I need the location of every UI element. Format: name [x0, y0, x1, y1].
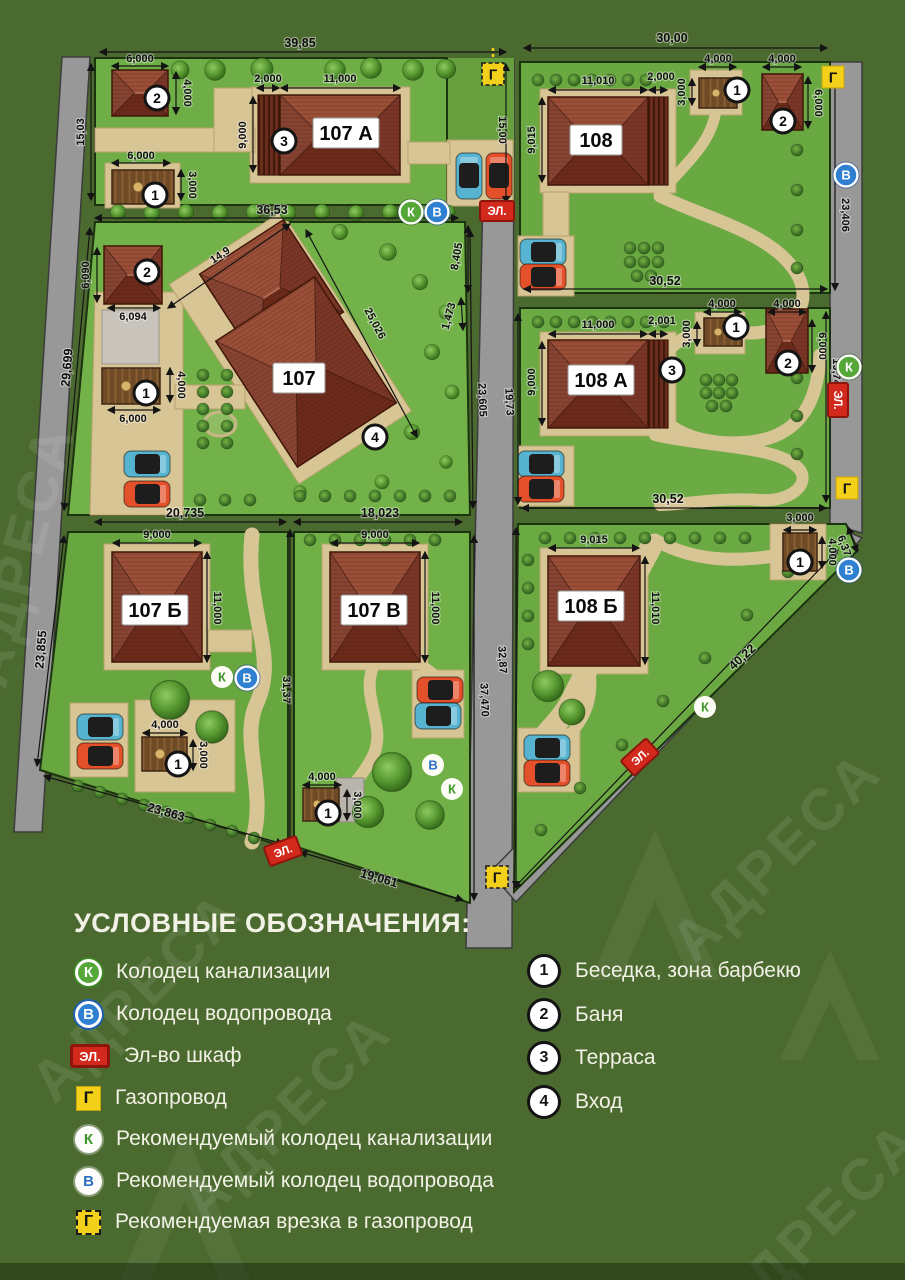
dim: 9,000	[526, 368, 538, 396]
recommended-gas-tap-icon: Г	[76, 1210, 101, 1235]
plot-label-107a: 107 А	[313, 118, 379, 148]
recommended-gas-tap-icon: Г	[482, 63, 504, 85]
svg-text:2: 2	[143, 264, 151, 280]
water-well-icon: В	[234, 665, 260, 691]
water-well-icon: В	[833, 162, 859, 188]
svg-text:1: 1	[733, 82, 741, 98]
dim: 9,000	[361, 529, 389, 541]
legend-item-sewer-well: ККолодец канализации	[75, 955, 330, 989]
legend-item-gas: ГГазопровод	[76, 1081, 227, 1115]
dim: 11,000	[429, 591, 441, 624]
dim-108a-bottom: 30,52	[652, 492, 683, 506]
dim: 4,000	[175, 371, 187, 399]
gas-icon: Г	[822, 66, 844, 88]
dim-108b-left: 32,87	[495, 646, 508, 674]
dim: 11,000	[211, 591, 223, 624]
dim-107v-right: 37,470	[477, 683, 490, 717]
marker-entrance: 4	[363, 425, 387, 449]
legend-item-entrance: 4Вход	[527, 1085, 623, 1119]
dim: 6,000	[816, 332, 828, 360]
sewer-well-icon: К	[75, 959, 102, 986]
dim-108a-left: 19,73	[502, 388, 515, 416]
svg-text:2: 2	[784, 355, 792, 371]
dim: 6,000	[127, 150, 155, 162]
svg-text:108 А: 108 А	[574, 370, 627, 392]
dim-boundary-107b-107v: 31,37	[280, 676, 292, 704]
svg-text:К: К	[218, 670, 226, 685]
dim: 3,000	[197, 741, 209, 769]
svg-text:В: В	[841, 168, 850, 183]
svg-text:1: 1	[796, 554, 804, 570]
electric-cabinet-icon: ЭЛ.	[480, 201, 514, 221]
dim: 2,000	[254, 73, 282, 85]
marker-gazebo: 1	[316, 801, 340, 825]
dim: 4,000	[708, 298, 736, 310]
sewer-well-icon: К	[836, 354, 862, 380]
gas-icon: Г	[76, 1086, 101, 1111]
dim: 11,010	[649, 591, 661, 624]
dim: 6,000	[126, 53, 154, 65]
dim: 3,000	[681, 320, 693, 348]
svg-text:3: 3	[280, 133, 288, 149]
marker-bath: 2	[771, 109, 795, 133]
dim: 6,094	[119, 311, 147, 323]
svg-text:107: 107	[282, 368, 315, 390]
dim: 6,000	[119, 413, 147, 425]
recommended-water-well-icon: В	[422, 754, 444, 776]
svg-text:2: 2	[153, 90, 161, 106]
dim: 2,000	[647, 71, 675, 83]
svg-text:ЭЛ.: ЭЛ.	[487, 206, 506, 218]
svg-text:Г: Г	[829, 70, 838, 87]
dim: 4,000	[704, 53, 732, 65]
plot-label-108a: 108 А	[568, 365, 634, 395]
dim: 11,010	[581, 75, 614, 87]
svg-text:Г: Г	[489, 67, 498, 84]
legend-item-gas-rec: ГРекомендуемая врезка в газопровод	[76, 1205, 473, 1239]
water-well-icon: В	[75, 1001, 102, 1028]
dim: 2,001	[648, 315, 676, 327]
dim-107a-left: 15,03	[75, 118, 87, 146]
dim: 11,000	[581, 319, 614, 331]
recommended-sewer-well-icon: К	[441, 778, 463, 800]
svg-text:В: В	[242, 671, 251, 686]
dim-107a-bottom: 36,53	[256, 203, 287, 217]
marker-1-icon: 1	[527, 954, 561, 988]
dim: 9,015	[526, 126, 538, 154]
dim-107a-right: 15,00	[496, 116, 508, 144]
svg-text:К: К	[407, 205, 415, 220]
svg-text:108 Б: 108 Б	[564, 596, 617, 618]
svg-text:Г: Г	[493, 870, 502, 887]
legend-item-terrace: 3Терраса	[527, 1041, 656, 1075]
marker-gazebo: 1	[166, 752, 190, 776]
electric-cabinet-icon: ЭЛ.	[70, 1044, 110, 1068]
svg-text:1: 1	[142, 385, 150, 401]
dim: 6,090	[80, 261, 92, 289]
dim-107-right: 23,605	[475, 383, 488, 417]
dim: 3,000	[676, 78, 688, 106]
dim-107-bottom-left: 20,735	[166, 506, 204, 520]
electric-cabinet-icon: ЭЛ.	[828, 383, 848, 417]
svg-text:108: 108	[579, 130, 612, 152]
marker-gazebo: 1	[788, 550, 812, 574]
dim: 3,000	[351, 791, 363, 819]
dim-107a-top: 39,85	[284, 36, 315, 50]
legend-item-electric: ЭЛ.Эл-во шкаф	[70, 1039, 242, 1073]
marker-3-icon: 3	[527, 1041, 561, 1075]
dim: 3,000	[186, 171, 198, 199]
sewer-well-icon: К	[398, 199, 424, 225]
marker-2-icon: 2	[527, 998, 561, 1032]
legend-item-gazebo: 1Беседка, зона барбекю	[527, 954, 801, 988]
svg-text:В: В	[432, 205, 441, 220]
svg-text:К: К	[701, 700, 709, 715]
plot-label-108: 108	[570, 125, 622, 155]
svg-text:Г: Г	[843, 481, 852, 498]
legend-item-sewer-rec: КРекомендуемый колодец канализации	[75, 1122, 492, 1156]
dim-108-bottom: 30,52	[649, 274, 680, 288]
plot-label-108b: 108 Б	[558, 591, 624, 621]
svg-text:1: 1	[324, 805, 332, 821]
recommended-gas-tap-icon: Г	[486, 866, 508, 888]
legend-title: УСЛОВНЫЕ ОБОЗНАЧЕНИЯ:	[74, 908, 471, 939]
recommended-water-well-icon: В	[75, 1168, 102, 1195]
plot-label-107: 107	[273, 363, 325, 393]
legend-item-water-rec: ВРекомендуемый колодец водопровода	[75, 1164, 494, 1198]
marker-gazebo: 1	[143, 183, 167, 207]
dim: 6,000	[812, 89, 824, 117]
svg-text:В: В	[428, 758, 437, 773]
svg-text:К: К	[845, 360, 853, 375]
svg-text:107 В: 107 В	[347, 600, 400, 622]
marker-4-icon: 4	[527, 1085, 561, 1119]
dim-108-top: 30,00	[656, 31, 687, 45]
recommended-sewer-well-icon: К	[694, 696, 716, 718]
dim-108-right: 23,406	[839, 198, 851, 232]
legend: УСЛОВНЫЕ ОБОЗНАЧЕНИЯ: ККолодец канализац…	[0, 900, 905, 1280]
recommended-sewer-well-icon: К	[211, 666, 233, 688]
dim: 9,000	[237, 121, 249, 149]
plot-label-107b: 107 Б	[122, 595, 188, 625]
svg-text:107 Б: 107 Б	[128, 600, 181, 622]
svg-text:4: 4	[371, 429, 379, 445]
marker-gazebo: 1	[724, 315, 748, 339]
dim: 4,000	[768, 53, 796, 65]
svg-text:107 А: 107 А	[319, 123, 372, 145]
dim: 4,000	[308, 771, 336, 783]
dim: 11,000	[323, 73, 356, 85]
site-plan-page: 39,85 15,03 15,00 36,53 6,000 4,000 6,00…	[0, 0, 905, 1280]
svg-text:2: 2	[779, 113, 787, 129]
marker-bath: 2	[135, 260, 159, 284]
marker-gazebo: 1	[134, 381, 158, 405]
svg-text:1: 1	[174, 756, 182, 772]
marker-terrace: 3	[660, 358, 684, 382]
gas-icon: Г	[836, 477, 858, 499]
dim: 4,000	[151, 719, 179, 731]
dim: 4,000	[181, 79, 193, 107]
dim: 3,000	[786, 512, 814, 524]
water-well-icon: В	[424, 199, 450, 225]
dim: 9,000	[143, 529, 171, 541]
svg-text:1: 1	[151, 187, 159, 203]
dim: 9,015	[580, 534, 608, 546]
recommended-sewer-well-icon: К	[75, 1126, 102, 1153]
dim: 4,000	[773, 298, 801, 310]
legend-item-bath: 2Баня	[527, 998, 623, 1032]
marker-terrace: 3	[272, 129, 296, 153]
svg-text:В: В	[844, 563, 853, 578]
svg-text:К: К	[448, 782, 456, 797]
marker-gazebo: 1	[725, 78, 749, 102]
svg-text:1: 1	[732, 319, 740, 335]
marker-bath: 2	[776, 351, 800, 375]
plot-label-107v: 107 В	[341, 595, 407, 625]
water-well-icon: В	[836, 557, 862, 583]
dim-107-bottom-right: 18,023	[361, 506, 399, 520]
svg-text:ЭЛ.: ЭЛ.	[831, 390, 843, 409]
svg-text:3: 3	[668, 362, 676, 378]
marker-bath: 2	[145, 86, 169, 110]
legend-item-water-well: ВКолодец водопровода	[75, 997, 332, 1031]
